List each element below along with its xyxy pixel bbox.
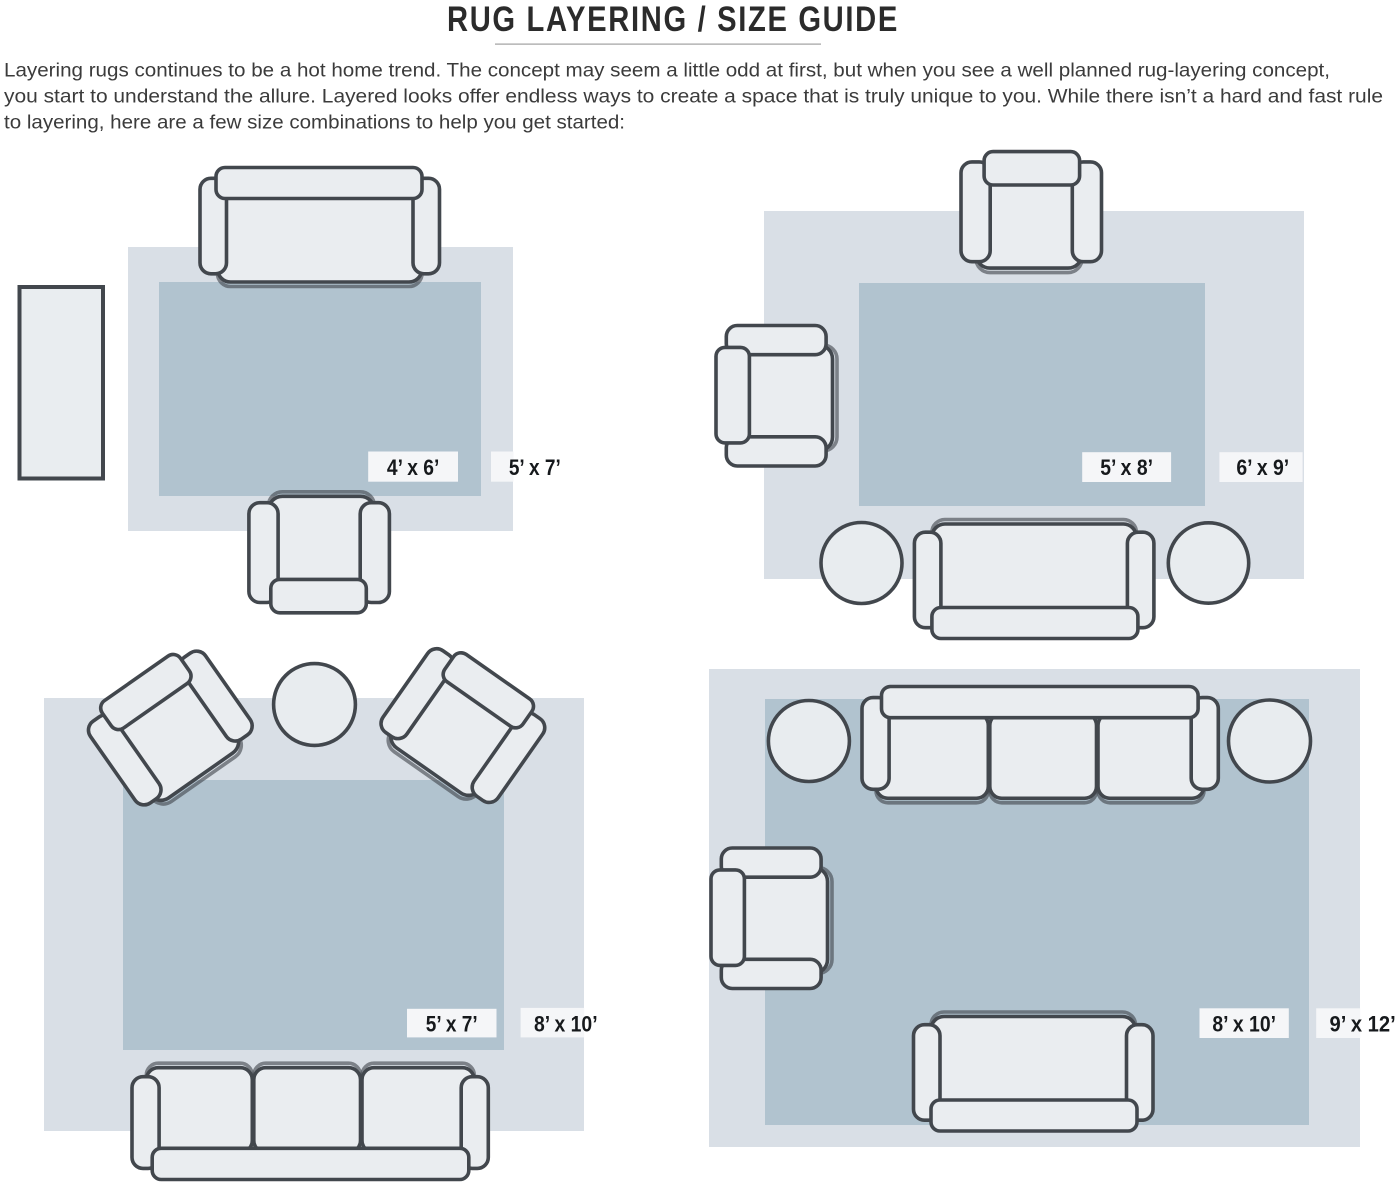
svg-text:4’ x 6’: 4’ x 6’ <box>387 455 439 480</box>
svg-text:5’ x 7’: 5’ x 7’ <box>509 455 561 480</box>
svg-text:8’ x 10’: 8’ x 10’ <box>534 1012 598 1037</box>
svg-text:Layering rugs continues to be: Layering rugs continues to be a hot home… <box>4 60 1330 82</box>
svg-text:to layering, here are a few si: to layering, here are a few size combina… <box>4 112 625 134</box>
svg-text:5’ x 8’: 5’ x 8’ <box>1100 455 1153 480</box>
svg-text:you start to understand the al: you start to understand the allure. Laye… <box>4 86 1383 108</box>
svg-text:RUG LAYERING / SIZE GUIDE: RUG LAYERING / SIZE GUIDE <box>447 0 899 39</box>
svg-text:5’ x 7’: 5’ x 7’ <box>426 1012 478 1037</box>
svg-text:8’ x 10’: 8’ x 10’ <box>1212 1012 1276 1037</box>
svg-text:9’ x 12’: 9’ x 12’ <box>1330 1012 1396 1037</box>
svg-text:6’ x 9’: 6’ x 9’ <box>1236 455 1289 480</box>
